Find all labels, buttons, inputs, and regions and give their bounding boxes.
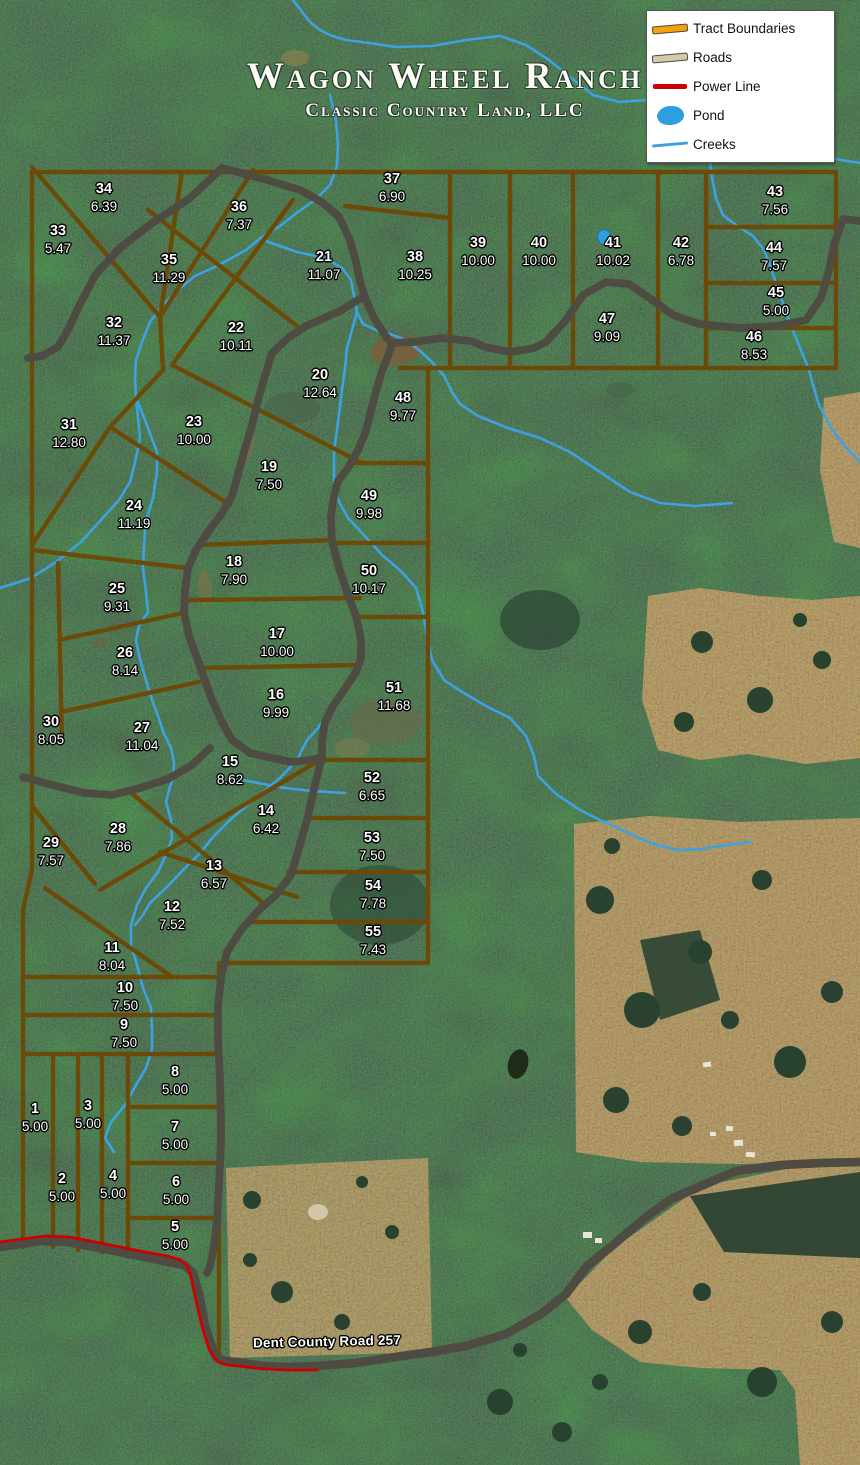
tract-label-9: 97.50 bbox=[111, 1017, 137, 1051]
tract-labels-layer: 15.0025.0035.0045.0055.0065.0075.0085.00… bbox=[0, 0, 860, 1465]
tract-label-37: 376.90 bbox=[379, 171, 405, 205]
pond-blob-icon bbox=[655, 104, 684, 127]
tract-label-29: 297.57 bbox=[38, 835, 64, 869]
legend-label: Roads bbox=[693, 50, 732, 65]
tract-label-10: 107.50 bbox=[112, 980, 138, 1014]
plat-map: 15.0025.0035.0045.0055.0065.0075.0085.00… bbox=[0, 0, 860, 1465]
legend-label: Creeks bbox=[693, 137, 736, 152]
tract-label-52: 526.65 bbox=[359, 770, 385, 804]
tract-label-3: 35.00 bbox=[75, 1098, 101, 1132]
tract-label-23: 2310.00 bbox=[177, 414, 211, 448]
tract-label-41: 4110.02 bbox=[596, 235, 630, 269]
tract-label-54: 547.78 bbox=[360, 878, 386, 912]
tract-label-1: 15.00 bbox=[22, 1101, 48, 1135]
tract-label-18: 187.90 bbox=[221, 554, 247, 588]
tract-label-16: 169.99 bbox=[263, 687, 289, 721]
tract-label-38: 3810.25 bbox=[398, 249, 432, 283]
tract-label-25: 259.31 bbox=[104, 581, 130, 615]
tract-label-4: 45.00 bbox=[100, 1168, 126, 1202]
tract-label-53: 537.50 bbox=[359, 830, 385, 864]
legend-label: Pond bbox=[693, 108, 725, 123]
tract-label-45: 455.00 bbox=[763, 285, 789, 319]
tract-label-21: 2111.07 bbox=[308, 249, 341, 283]
tract-label-34: 346.39 bbox=[91, 181, 117, 215]
tract-label-44: 447.57 bbox=[761, 240, 787, 274]
tract-label-27: 2711.04 bbox=[126, 720, 159, 754]
power-line-icon bbox=[653, 84, 687, 89]
tract-label-6: 65.00 bbox=[163, 1174, 189, 1208]
tract-label-35: 3511.29 bbox=[153, 252, 186, 286]
tract-label-31: 3112.80 bbox=[52, 417, 86, 451]
tract-label-43: 437.56 bbox=[762, 184, 788, 218]
tract-label-46: 468.53 bbox=[741, 329, 767, 363]
tract-label-24: 2411.19 bbox=[118, 498, 151, 532]
tract-boundary-line-icon bbox=[652, 23, 689, 34]
tract-label-32: 3211.37 bbox=[98, 315, 131, 349]
tract-label-26: 268.14 bbox=[112, 645, 138, 679]
tract-label-51: 5111.68 bbox=[378, 680, 411, 714]
legend-item-creeks: Creeks bbox=[647, 131, 834, 157]
tract-label-15: 158.62 bbox=[217, 754, 243, 788]
tract-label-47: 479.09 bbox=[594, 311, 620, 345]
county-road-label: Dent County Road 257 bbox=[253, 1332, 401, 1350]
tract-label-17: 1710.00 bbox=[260, 626, 294, 660]
tract-label-20: 2012.64 bbox=[303, 367, 337, 401]
tract-label-55: 557.43 bbox=[360, 924, 386, 958]
tract-label-28: 287.86 bbox=[105, 821, 131, 855]
tract-label-39: 3910.00 bbox=[461, 235, 495, 269]
tract-label-50: 5010.17 bbox=[352, 563, 386, 597]
tract-label-36: 367.37 bbox=[226, 199, 252, 233]
tract-label-33: 335.47 bbox=[45, 223, 71, 257]
tract-label-48: 489.77 bbox=[390, 390, 416, 424]
map-subtitle: Classic Country Land, LLC bbox=[247, 100, 643, 122]
map-title-block: Wagon Wheel Ranch Classic Country Land, … bbox=[247, 55, 643, 122]
tract-label-13: 136.57 bbox=[201, 858, 227, 892]
tract-label-8: 85.00 bbox=[162, 1064, 188, 1098]
tract-label-7: 75.00 bbox=[162, 1119, 188, 1153]
tract-label-2: 25.00 bbox=[49, 1171, 75, 1205]
legend-item-tract-boundaries: Tract Boundaries bbox=[647, 16, 834, 42]
tract-label-11: 118.04 bbox=[99, 940, 125, 974]
tract-label-14: 146.42 bbox=[253, 803, 279, 837]
legend-item-roads: Roads bbox=[647, 45, 834, 71]
tract-label-42: 426.78 bbox=[668, 235, 694, 269]
tract-label-19: 197.50 bbox=[256, 459, 282, 493]
legend: Tract Boundaries Roads Power Line Pond C… bbox=[646, 10, 835, 163]
tract-label-49: 499.98 bbox=[356, 488, 382, 522]
legend-label: Tract Boundaries bbox=[693, 21, 795, 36]
tract-label-30: 308.05 bbox=[38, 714, 64, 748]
legend-item-pond: Pond bbox=[647, 102, 834, 128]
map-title: Wagon Wheel Ranch bbox=[247, 55, 643, 98]
legend-item-power-line: Power Line bbox=[647, 73, 834, 99]
tract-label-40: 4010.00 bbox=[522, 235, 556, 269]
road-line-icon bbox=[652, 52, 689, 63]
tract-label-22: 2210.11 bbox=[220, 320, 253, 354]
legend-label: Power Line bbox=[693, 79, 761, 94]
creek-line-icon bbox=[652, 141, 688, 147]
tract-label-5: 55.00 bbox=[162, 1219, 188, 1253]
tract-label-12: 127.52 bbox=[159, 899, 185, 933]
